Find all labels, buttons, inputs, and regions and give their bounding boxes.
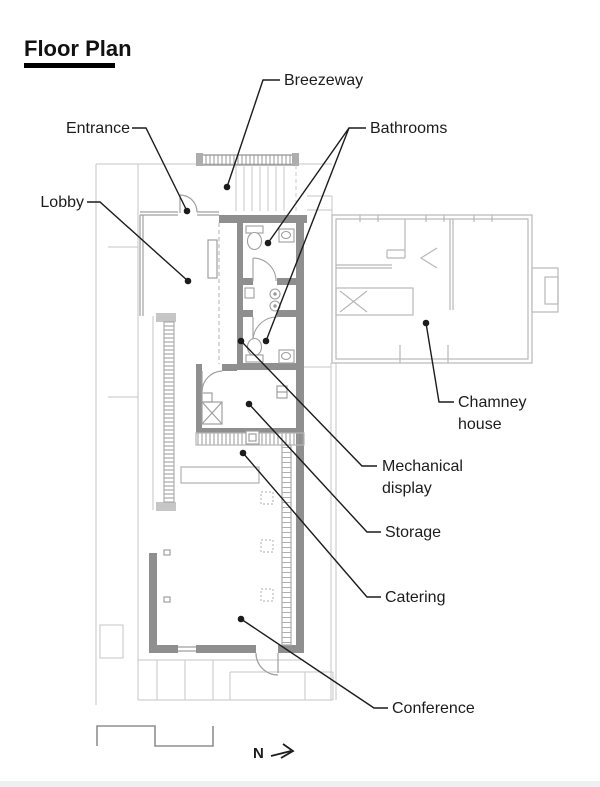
step-detail <box>97 726 213 746</box>
canopy-end-cap-right <box>292 153 299 166</box>
alcove-fixture <box>245 288 254 298</box>
bathroom-door-swing-upper <box>253 258 276 281</box>
leader-conference <box>241 619 388 708</box>
label-mechanical-display-line2: display <box>382 480 432 497</box>
north-arrow: N <box>253 744 293 762</box>
label-catering: Catering <box>385 589 445 606</box>
leader-entrance <box>132 128 187 211</box>
counter-sink <box>246 431 259 444</box>
breezeway-canopy <box>196 153 299 211</box>
toilet-bowl-upper <box>248 233 262 250</box>
label-mechanical-display-line1: Mechanical <box>382 458 463 475</box>
dot-storage <box>246 401 253 408</box>
storage-door-swing <box>202 371 222 392</box>
label-storage: Storage <box>385 524 441 541</box>
house-entry-room <box>336 288 413 315</box>
label-conference: Conference <box>392 700 475 717</box>
dot-conference <box>238 616 245 623</box>
floor-trench <box>282 445 291 645</box>
leader-bathrooms-1 <box>268 128 366 243</box>
label-chamney-house-line2: house <box>458 416 502 433</box>
dot-entrance <box>184 208 191 215</box>
chamney-house <box>332 215 558 363</box>
floor-plan-drawing: Breezeway Entrance Lobby Bathrooms Chamn… <box>0 0 600 787</box>
toilet-bowl-lower <box>248 339 262 356</box>
dot-bathroom-lower <box>263 338 270 345</box>
north-arrow-glyph <box>271 744 293 758</box>
dot-lobby <box>185 278 192 285</box>
label-bathrooms: Bathrooms <box>370 120 447 137</box>
dot-catering <box>240 450 247 457</box>
label-entrance: Entrance <box>66 120 130 137</box>
title-underline <box>24 63 115 68</box>
north-label: N <box>253 745 264 762</box>
dot-bathroom-upper <box>265 240 272 247</box>
lobby-bench <box>208 240 217 278</box>
column-markers <box>261 492 273 601</box>
label-lobby: Lobby <box>40 194 84 211</box>
dot-chamney-house <box>423 320 430 327</box>
leader-breezeway <box>227 80 280 187</box>
floor-plan-page: Floor Plan <box>0 0 600 787</box>
label-breezeway: Breezeway <box>284 72 363 89</box>
leader-storage <box>249 404 381 532</box>
page-bottom-edge <box>0 781 600 787</box>
west-glazing-wall <box>156 313 176 511</box>
label-chamney-house-line1: Chamney <box>458 394 526 411</box>
house-wall-jog <box>421 248 437 268</box>
dot-breezeway <box>224 184 231 191</box>
breezeway-posts <box>236 165 296 211</box>
dot-mechanical-display <box>238 338 245 345</box>
canopy-end-cap-left <box>196 153 203 166</box>
bathroom-fixtures <box>245 226 294 363</box>
page-title: Floor Plan <box>24 36 132 62</box>
leader-lines <box>87 80 454 708</box>
catering-table <box>181 467 259 483</box>
